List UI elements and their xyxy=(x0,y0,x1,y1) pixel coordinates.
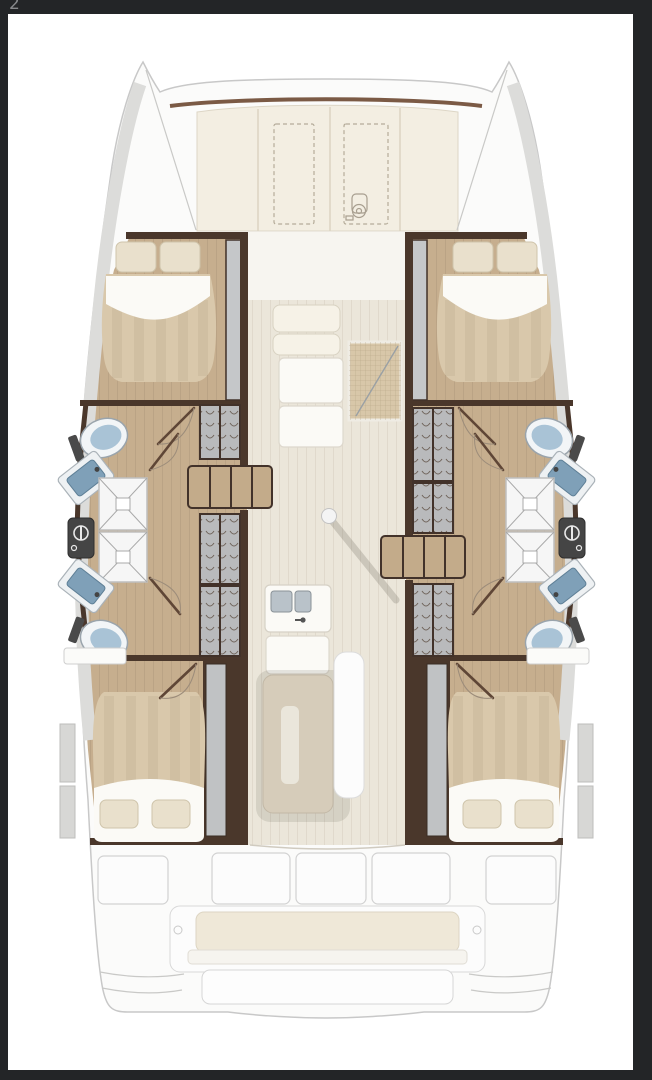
galley-sink-unit xyxy=(265,585,331,674)
saloon-forward-lounge xyxy=(248,232,405,302)
entry-grid-mat xyxy=(349,342,401,420)
sink-basin xyxy=(271,591,292,612)
aft-bench-cushion xyxy=(196,912,459,952)
catamaran-floorplan-diagram: 2 xyxy=(0,0,652,1080)
aft-bench xyxy=(170,906,485,972)
corner-artifact-text: 2 xyxy=(9,0,20,14)
sink-basin xyxy=(295,591,311,612)
aft-bench-step xyxy=(188,950,467,964)
forward-cockpit xyxy=(197,105,458,231)
aft-cockpit-lockers xyxy=(98,853,556,904)
floorplan-screenshot: 2 xyxy=(0,0,652,1080)
galley-counters xyxy=(279,358,343,447)
saloon-forward-sofa xyxy=(273,305,340,355)
galley-lower-cabinet xyxy=(266,636,329,674)
stern-platform xyxy=(202,970,453,1004)
table-leaf xyxy=(281,706,299,784)
saloon-bench xyxy=(334,652,364,798)
